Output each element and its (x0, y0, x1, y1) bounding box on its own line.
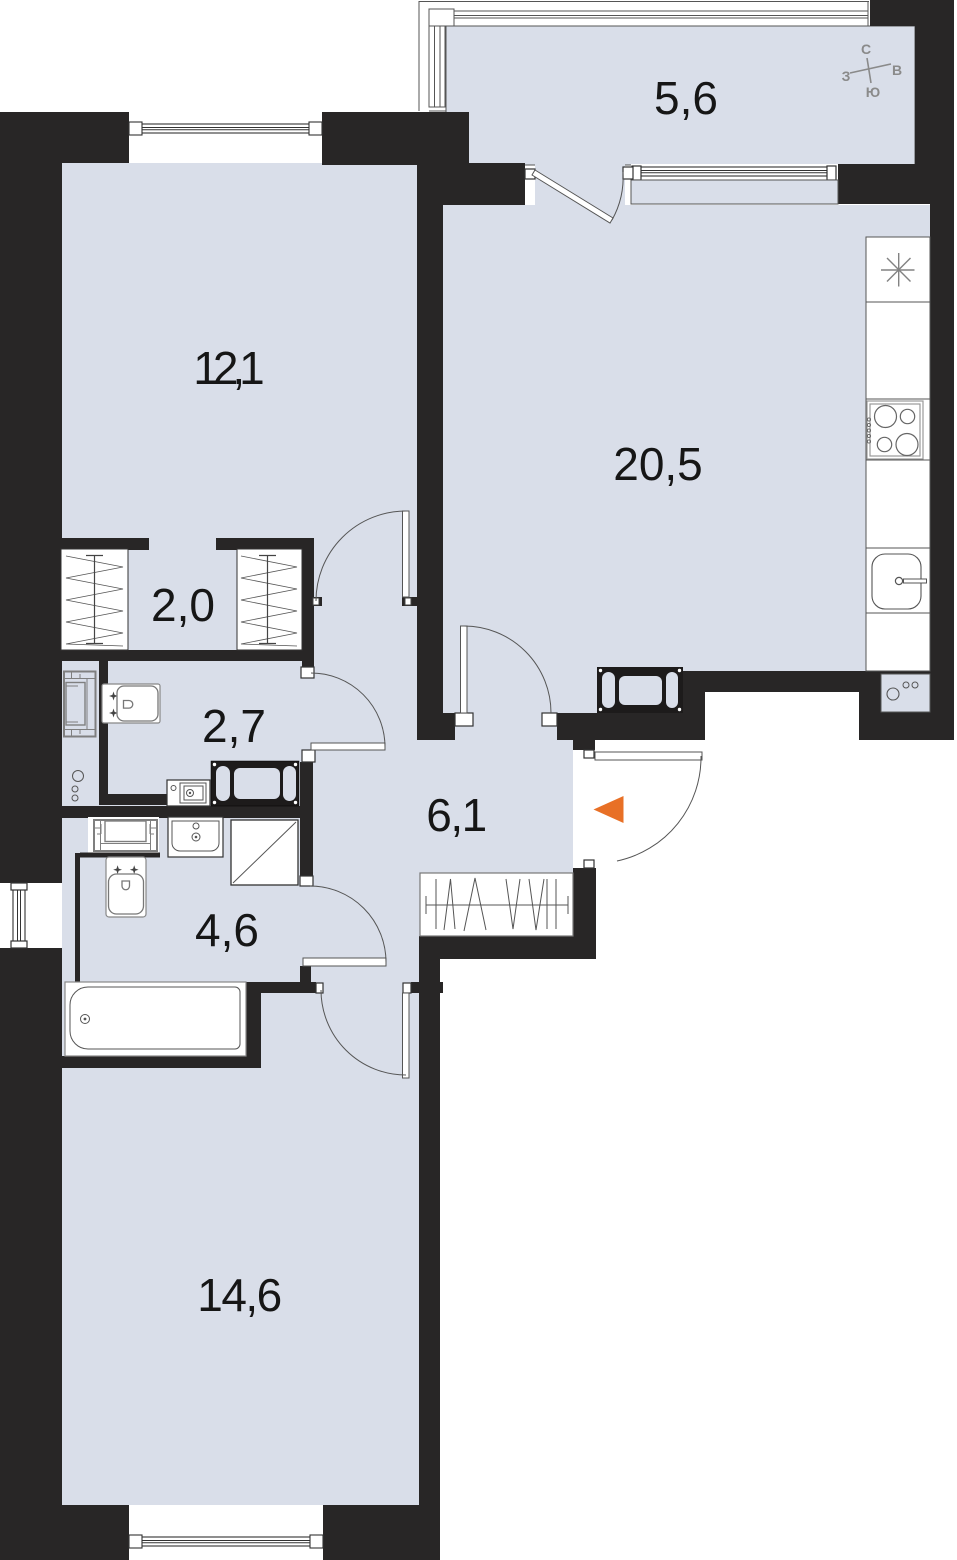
svg-text:З: З (842, 68, 851, 84)
svg-text:5,6: 5,6 (654, 72, 718, 124)
svg-text:4,6: 4,6 (195, 904, 259, 956)
svg-text:14,6: 14,6 (197, 1269, 281, 1321)
svg-text:20,5: 20,5 (613, 438, 703, 490)
svg-text:В: В (892, 62, 902, 78)
svg-text:С: С (861, 41, 871, 57)
svg-text:6,1: 6,1 (426, 789, 485, 841)
svg-text:12,1: 12,1 (193, 342, 263, 394)
svg-text:Ю: Ю (866, 84, 880, 100)
svg-text:2,7: 2,7 (202, 700, 266, 752)
svg-text:2,0: 2,0 (151, 579, 215, 631)
